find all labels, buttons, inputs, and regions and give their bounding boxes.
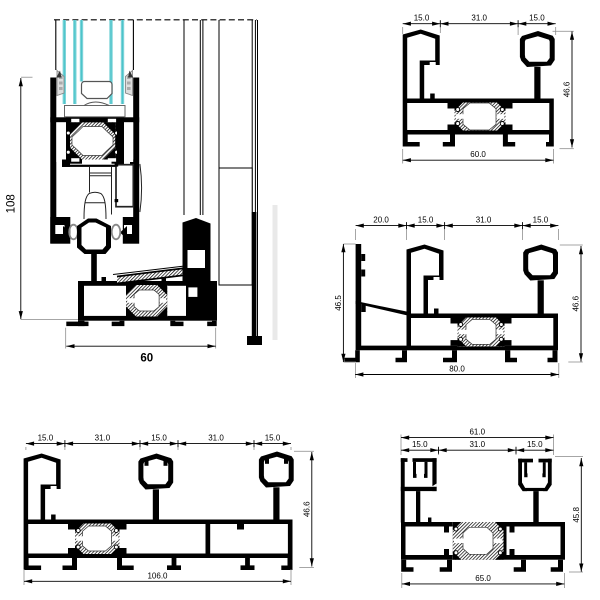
svg-text:15.0: 15.0	[265, 434, 281, 443]
svg-text:61.0: 61.0	[469, 428, 485, 437]
svg-text:20.0: 20.0	[373, 216, 389, 225]
svg-text:46.6: 46.6	[572, 295, 581, 311]
svg-text:15.0: 15.0	[38, 434, 54, 443]
svg-text:31.0: 31.0	[95, 434, 111, 443]
svg-text:15.0: 15.0	[529, 14, 545, 23]
svg-text:31.0: 31.0	[208, 434, 224, 443]
svg-text:80.0: 80.0	[449, 365, 465, 374]
svg-text:15.0: 15.0	[418, 216, 434, 225]
svg-text:46.5: 46.5	[334, 295, 343, 311]
svg-text:31.0: 31.0	[471, 14, 487, 23]
svg-text:15.0: 15.0	[527, 440, 543, 449]
svg-text:15.0: 15.0	[412, 440, 428, 449]
svg-text:60.0: 60.0	[470, 150, 486, 159]
svg-text:15.0: 15.0	[414, 14, 430, 23]
svg-text:106.0: 106.0	[147, 571, 168, 580]
svg-text:15.0: 15.0	[151, 434, 167, 443]
svg-text:46.6: 46.6	[563, 81, 572, 97]
svg-text:65.0: 65.0	[475, 574, 491, 583]
svg-text:60: 60	[140, 353, 153, 365]
svg-text:31.0: 31.0	[476, 216, 492, 225]
svg-text:15.0: 15.0	[533, 216, 549, 225]
svg-text:45.8: 45.8	[572, 507, 581, 523]
svg-text:46.6: 46.6	[303, 501, 312, 517]
svg-text:108: 108	[6, 194, 18, 213]
svg-text:31.0: 31.0	[469, 440, 485, 449]
